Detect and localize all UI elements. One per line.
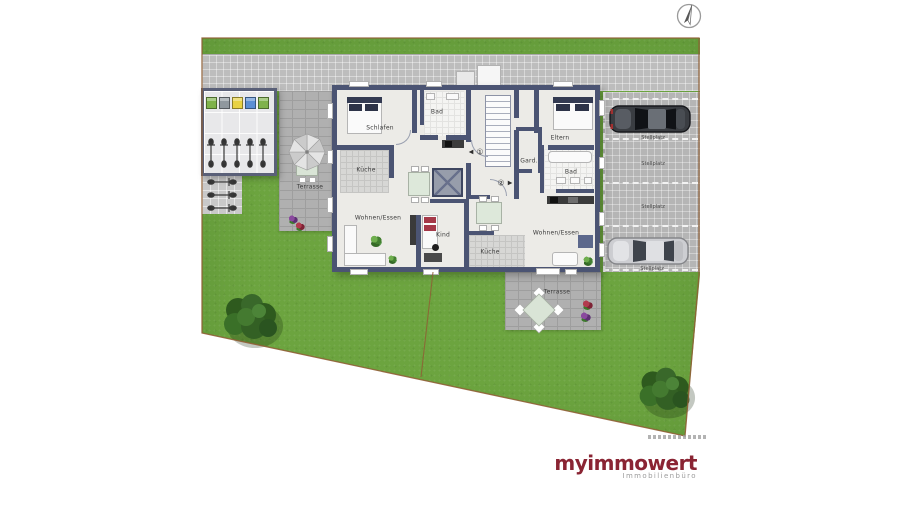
stove — [550, 197, 558, 203]
waste-bin-gray-icon — [219, 97, 230, 109]
pillow — [365, 104, 378, 111]
waste-bin-green-icon — [206, 97, 217, 109]
parking-label-1: Stellplatz — [641, 135, 665, 141]
pillow-red — [424, 225, 436, 231]
parking-label-4: Stellplatz — [640, 266, 664, 272]
window-sill — [553, 81, 573, 87]
room-label-gard: Gard. — [520, 158, 537, 165]
chair — [411, 166, 419, 172]
toilet — [426, 93, 435, 100]
site-plan-canvas: Schlafen Bad Küche Wohnen/Essen Kind Elt… — [0, 0, 900, 507]
pillow — [349, 104, 362, 111]
room-label-wohnen2: Wohnen/Essen — [533, 230, 579, 237]
wall — [514, 90, 519, 118]
door-marker-right-icon: ▶ — [508, 180, 513, 187]
waste-bin-yellow-icon — [232, 97, 243, 109]
unit2-number: ② — [497, 179, 504, 188]
garden-chair — [299, 177, 306, 183]
window-sill — [327, 103, 333, 119]
stove — [445, 141, 452, 147]
waste-bin-green2-icon — [258, 97, 269, 109]
room-label-kueche1: Küche — [356, 167, 375, 174]
room-label-bad1: Bad — [431, 109, 443, 116]
north-arrow-icon — [674, 1, 704, 31]
terrace-left-label: Terrasse — [297, 184, 323, 191]
terrace-bottom-label: Terrasse — [544, 289, 570, 296]
toilet — [584, 177, 592, 184]
window-sill — [350, 269, 368, 275]
window-sill — [349, 81, 369, 87]
dining-table-unit1 — [408, 172, 430, 196]
tree-icon — [214, 288, 288, 354]
sofa-unit2 — [552, 252, 578, 266]
bathtub — [548, 151, 592, 163]
window-sill — [423, 269, 439, 275]
tree-icon — [630, 362, 700, 424]
pillow — [575, 104, 589, 111]
window-sill — [599, 243, 605, 257]
wall — [389, 145, 394, 178]
room-label-schlafen: Schlafen — [366, 125, 393, 132]
room-label-kueche2: Küche — [480, 249, 499, 256]
window-sill — [426, 81, 442, 87]
plant — [583, 256, 593, 266]
wall — [416, 215, 421, 267]
pillow — [556, 104, 570, 111]
desk-chair — [432, 244, 439, 251]
parking-label-3: Stellplatz — [641, 204, 665, 210]
wall — [514, 130, 519, 199]
bed-headboard — [347, 97, 382, 103]
wall — [516, 127, 536, 131]
staircase — [485, 95, 511, 167]
room-label-eltern: Eltern — [551, 135, 570, 142]
sink — [570, 177, 580, 184]
chair — [421, 197, 429, 203]
flower-bush — [580, 312, 591, 322]
wall — [556, 189, 594, 193]
plant — [370, 235, 382, 247]
chair — [479, 225, 487, 231]
waste-bin-blue-icon — [245, 97, 256, 109]
patio-door-step — [536, 268, 560, 275]
room-label-wohnen1: Wohnen/Essen — [355, 215, 401, 222]
pillow-red — [424, 217, 436, 223]
bicycles-in-shed-icon — [205, 134, 273, 172]
window-sill — [599, 212, 605, 226]
shelf — [410, 215, 416, 245]
window-sill — [327, 150, 333, 164]
window-sill — [327, 236, 333, 252]
wall — [516, 169, 532, 173]
logo-tagline: Immobilienbüro — [623, 472, 698, 480]
wall — [468, 231, 494, 235]
car-dark-icon — [608, 101, 692, 137]
room-label-kind: Kind — [436, 232, 450, 239]
building-floorplan — [332, 85, 600, 272]
flower-bush — [582, 300, 593, 310]
garden-chair — [309, 177, 316, 183]
chair — [491, 196, 499, 202]
sofa-unit1 — [344, 253, 386, 266]
wall — [548, 145, 594, 150]
bed-headboard — [553, 97, 593, 103]
wall — [412, 90, 417, 133]
wall — [420, 90, 424, 125]
wall — [430, 199, 466, 203]
wall — [466, 90, 471, 142]
dining-table-unit2 — [476, 202, 502, 224]
wall — [420, 135, 438, 140]
car-silver-icon — [606, 233, 690, 269]
window-sill — [565, 269, 577, 275]
wall — [540, 145, 544, 193]
room-label-bad2: Bad — [565, 169, 577, 176]
chair — [491, 225, 499, 231]
sink-counter — [568, 197, 578, 203]
window-sill — [599, 157, 605, 169]
fine-print — [648, 435, 706, 439]
unit1-number: ① — [476, 148, 483, 157]
sink — [446, 93, 459, 100]
bicycles-outside-icon — [203, 176, 243, 216]
door-marker-left-icon: ◀ — [469, 149, 474, 156]
desk — [424, 253, 442, 262]
plant — [388, 255, 397, 264]
window-sill — [599, 100, 605, 116]
wall — [466, 163, 471, 199]
window-sill — [327, 197, 333, 213]
chair — [411, 197, 419, 203]
parasol-icon — [287, 133, 327, 173]
armchair — [578, 235, 593, 248]
flower-bush — [295, 222, 305, 231]
wall — [337, 145, 389, 150]
elevator — [432, 168, 463, 197]
sink — [556, 177, 566, 184]
chair — [479, 196, 487, 202]
chair — [421, 166, 429, 172]
parking-label-2: Stellplatz — [641, 161, 665, 167]
